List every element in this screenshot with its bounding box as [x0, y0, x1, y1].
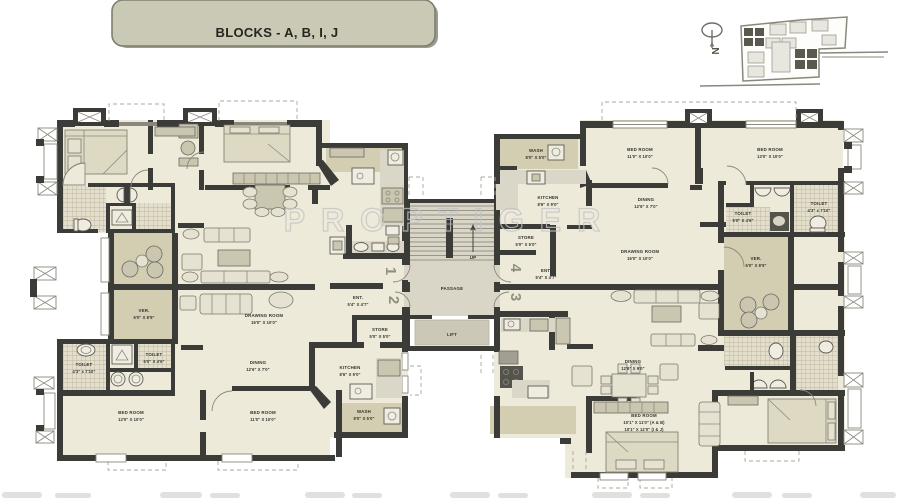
svg-text:6'0" X 4'6": 6'0" X 4'6": [143, 359, 164, 364]
svg-text:13'0" X 10'0": 13'0" X 10'0": [118, 417, 144, 422]
svg-text:LIFT: LIFT: [447, 332, 457, 337]
svg-text:ENT.: ENT.: [353, 295, 363, 300]
svg-text:VER.: VER.: [750, 256, 761, 261]
svg-text:11'0" X 10'0": 11'0" X 10'0": [250, 417, 276, 422]
svg-text:1: 1: [382, 267, 399, 275]
svg-text:4'3" x 7'10": 4'3" x 7'10": [808, 208, 831, 213]
svg-text:4: 4: [507, 264, 524, 273]
svg-text:TOILET: TOILET: [735, 211, 752, 216]
svg-text:TOILET: TOILET: [146, 352, 163, 357]
svg-text:DINING: DINING: [250, 360, 267, 365]
svg-text:5'0" X 5'0": 5'0" X 5'0": [369, 334, 390, 339]
svg-text:STORE: STORE: [372, 327, 388, 332]
svg-text:DRAWING ROOM: DRAWING ROOM: [245, 313, 284, 318]
svg-text:DINING: DINING: [638, 197, 655, 202]
svg-text:8'0" X 5'0": 8'0" X 5'0": [525, 155, 546, 160]
svg-text:5'0" X 4'6": 5'0" X 4'6": [732, 218, 753, 223]
svg-text:TOILET: TOILET: [811, 201, 828, 206]
svg-text:KITCHEN: KITCHEN: [538, 195, 559, 200]
svg-text:6'0" X 8'9": 6'0" X 8'9": [133, 315, 154, 320]
svg-text:11'0" X 10'0": 11'0" X 10'0": [627, 154, 653, 159]
svg-text:DRAWING ROOM: DRAWING ROOM: [621, 249, 660, 254]
svg-text:BED ROOM: BED ROOM: [757, 147, 783, 152]
svg-text:UP: UP: [470, 255, 476, 260]
svg-text:10'1" X 11'0" (A & B): 10'1" X 11'0" (A & B): [623, 420, 665, 425]
svg-text:16'0" X 10'0": 16'0" X 10'0": [627, 256, 653, 261]
svg-text:10'1" X 12'0" (I & J): 10'1" X 12'0" (I & J): [624, 427, 664, 432]
svg-text:8'0" X 5'0": 8'0" X 5'0": [353, 416, 374, 421]
svg-text:12'6" X 7'0": 12'6" X 7'0": [634, 204, 657, 209]
svg-text:8'6" X 9'0": 8'6" X 9'0": [339, 372, 360, 377]
svg-text:2: 2: [385, 296, 402, 304]
svg-text:WASH: WASH: [529, 148, 543, 153]
svg-text:BED ROOM: BED ROOM: [250, 410, 276, 415]
svg-text:6'0" X 8'9": 6'0" X 8'9": [745, 263, 766, 268]
svg-text:TOILET: TOILET: [76, 362, 93, 367]
svg-text:BED ROOM: BED ROOM: [118, 410, 144, 415]
svg-text:VER.: VER.: [138, 308, 149, 313]
svg-text:ENT.: ENT.: [541, 268, 551, 273]
svg-text:5'0" X 5'0": 5'0" X 5'0": [515, 242, 536, 247]
svg-text:BLOCKS - A, B, I, J: BLOCKS - A, B, I, J: [216, 25, 339, 40]
svg-text:16'0" X 10'0": 16'0" X 10'0": [251, 320, 277, 325]
svg-text:N: N: [709, 47, 720, 54]
svg-text:DINING: DINING: [625, 359, 642, 364]
svg-text:PASSAGE: PASSAGE: [441, 286, 464, 291]
svg-text:WASH: WASH: [357, 409, 371, 414]
svg-text:4'3" x 7'10": 4'3" x 7'10": [73, 369, 96, 374]
svg-text:13'0" X 10'0": 13'0" X 10'0": [757, 154, 783, 159]
svg-text:12'6" X 9'0": 12'6" X 9'0": [621, 366, 644, 371]
svg-text:BED ROOM: BED ROOM: [631, 413, 657, 418]
svg-text:3: 3: [507, 293, 524, 301]
svg-text:BED ROOM: BED ROOM: [627, 147, 653, 152]
svg-text:PROPTIGER: PROPTIGER: [284, 202, 616, 238]
svg-text:5'4" X 4'7": 5'4" X 4'7": [347, 302, 368, 307]
svg-text:12'6" X 7'0": 12'6" X 7'0": [246, 367, 269, 372]
svg-text:KITCHEN: KITCHEN: [340, 365, 361, 370]
svg-text:5'4" X 4'7": 5'4" X 4'7": [535, 275, 556, 280]
